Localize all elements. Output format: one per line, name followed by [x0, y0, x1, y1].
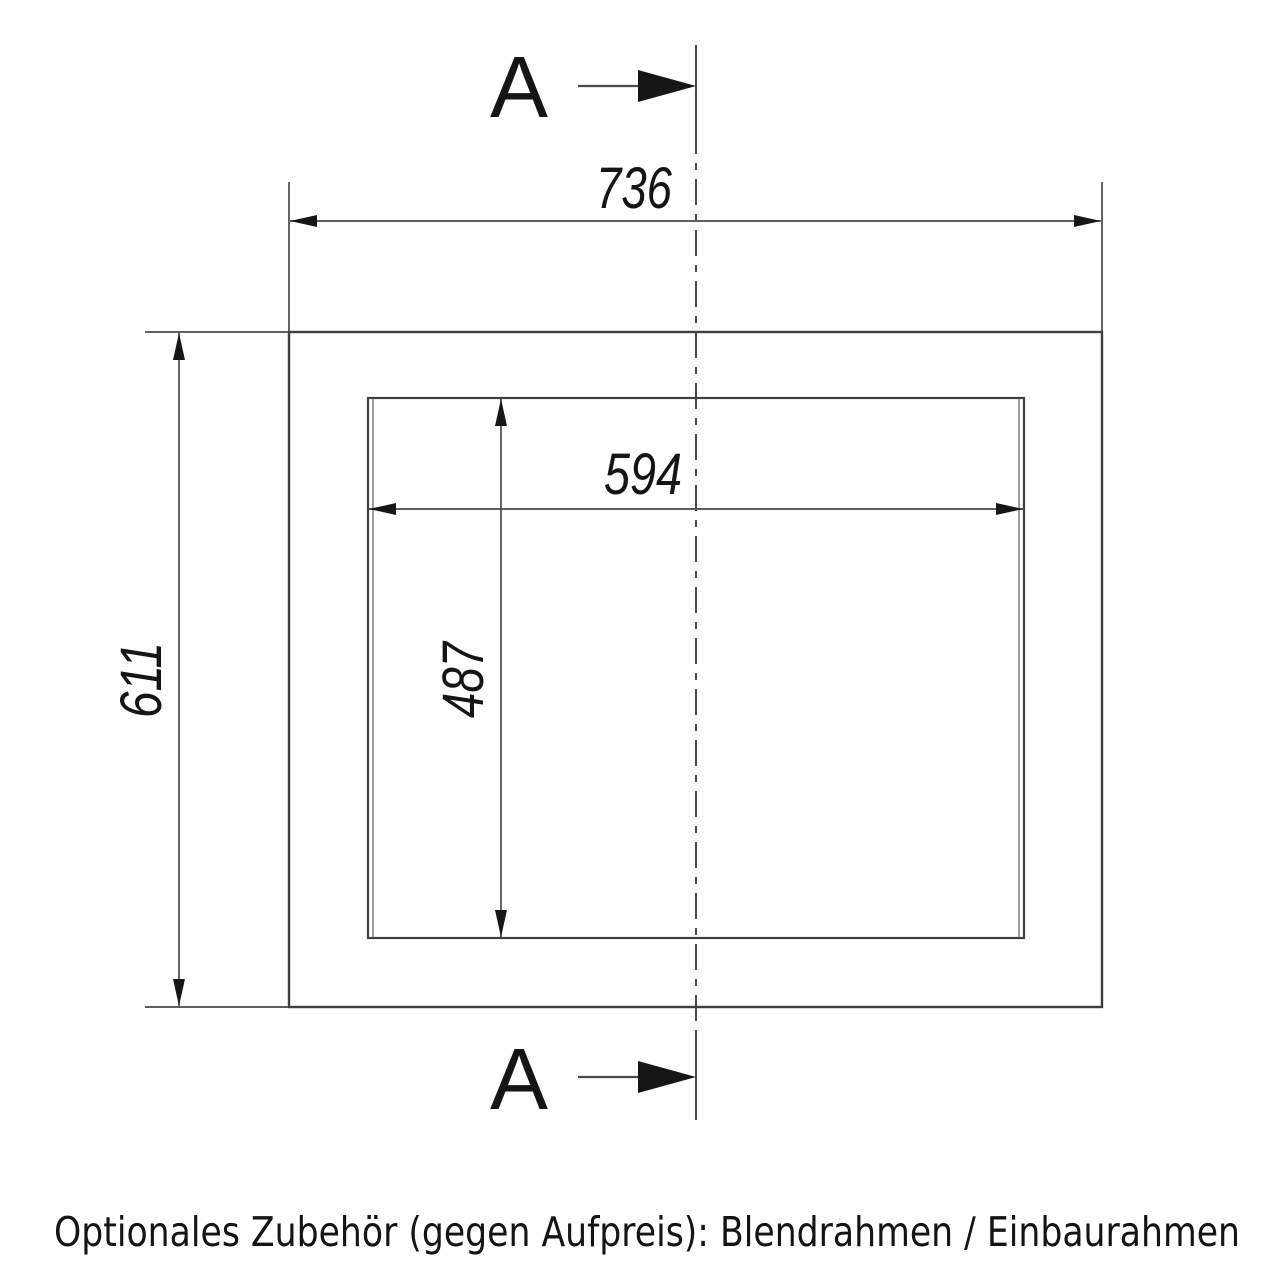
caption-optional-accessories: Optionales Zubehör (gegen Aufpreis): Ble…: [54, 1208, 1240, 1256]
section-letter-top: A: [490, 39, 548, 136]
dimension-value-outer-width: 736: [596, 156, 673, 221]
section-letter-bottom: A: [490, 1031, 548, 1128]
dimension-value-inner-width: 594: [604, 442, 682, 507]
dimension-value-outer-height: 611: [109, 642, 174, 718]
frame-dimension-drawing: A A 736: [0, 0, 1280, 1280]
technical-drawing-canvas: A A 736: [0, 0, 1280, 1280]
dimension-value-inner-height: 487: [431, 640, 496, 718]
